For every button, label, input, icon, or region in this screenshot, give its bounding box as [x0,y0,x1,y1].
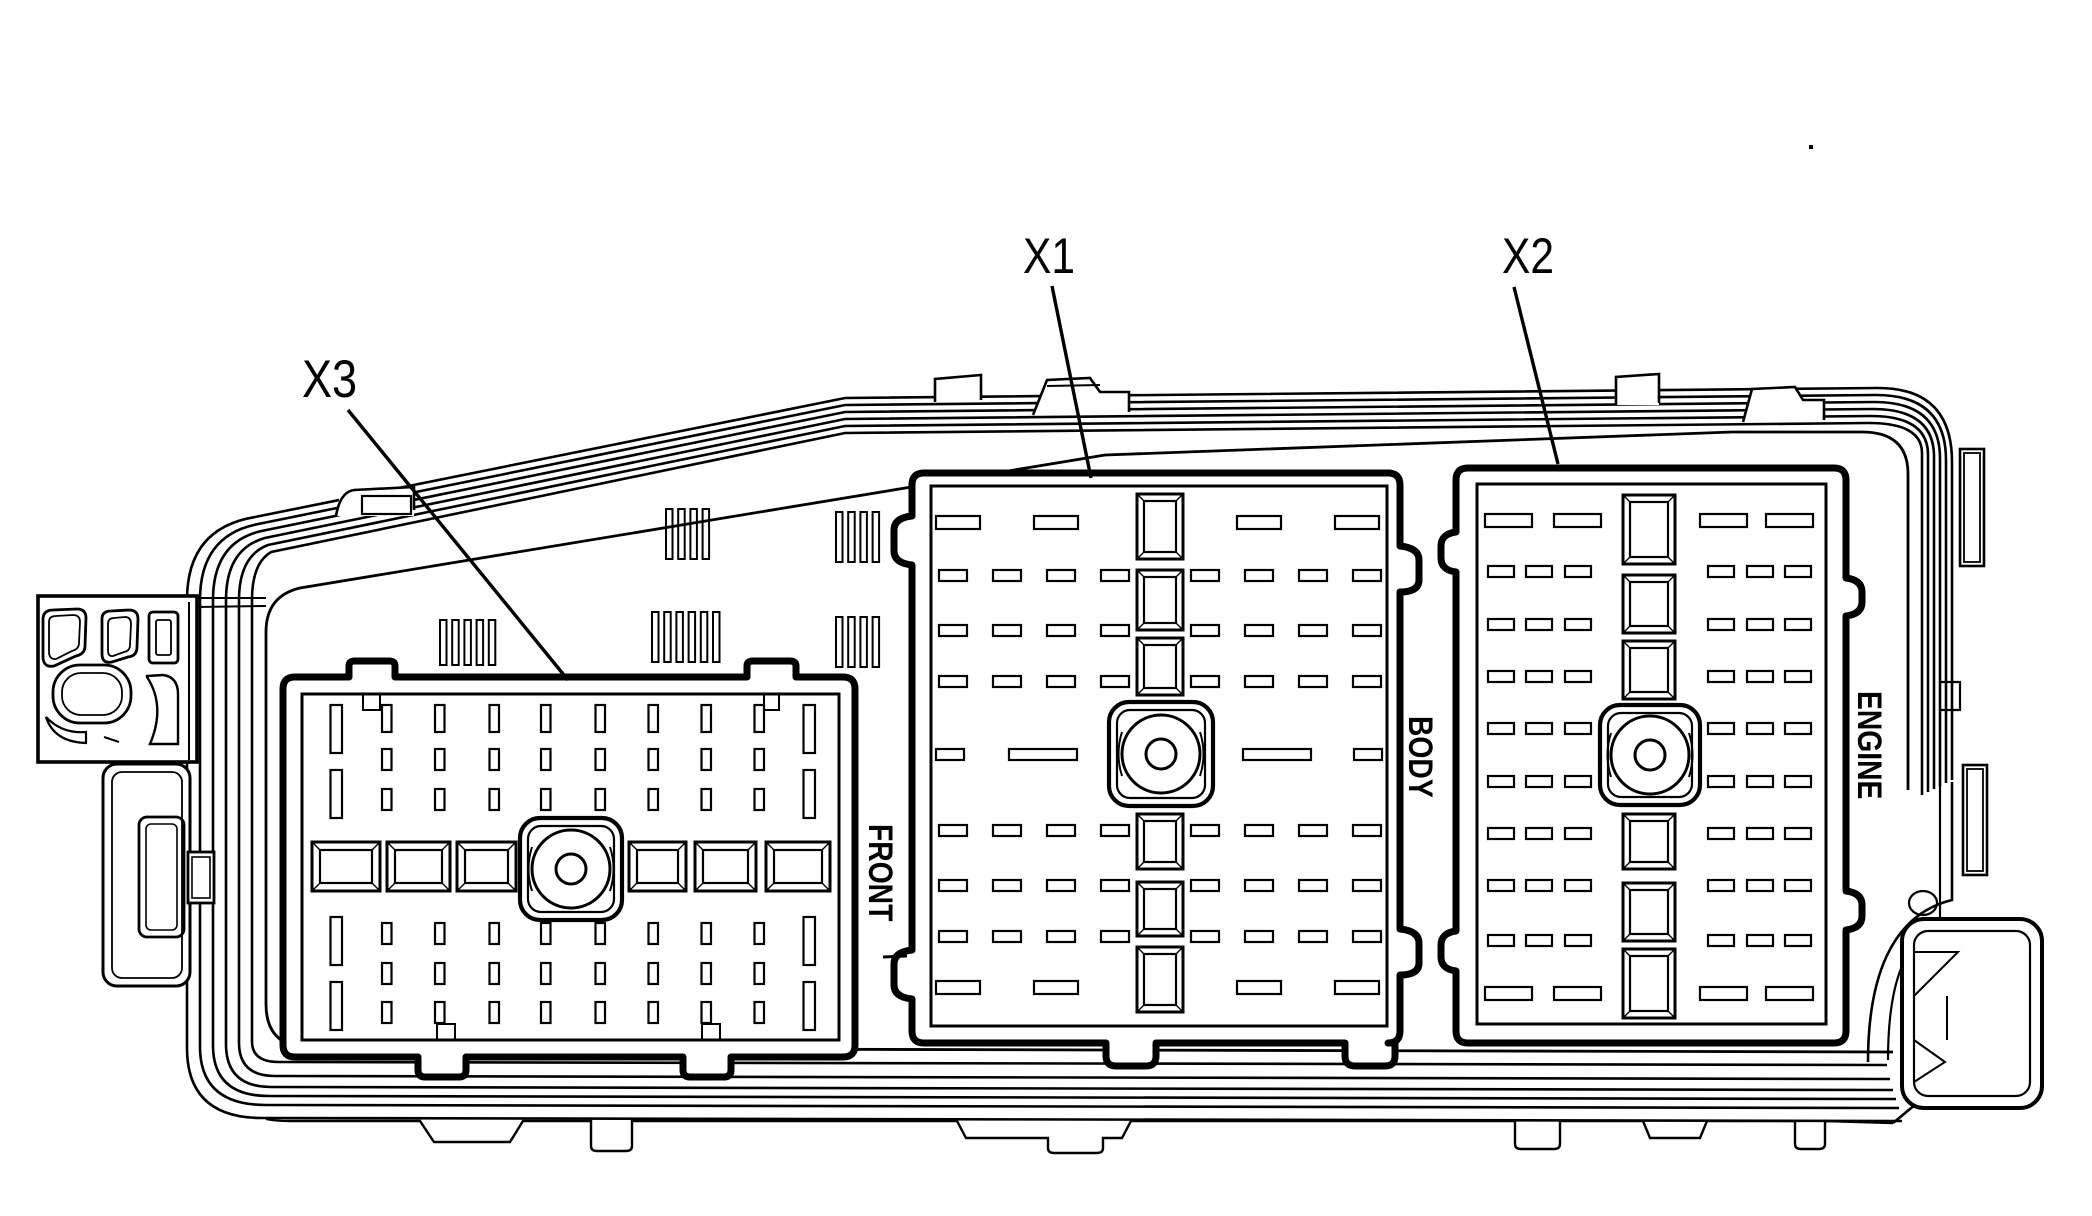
svg-text:ENGINE: ENGINE [1850,691,1889,799]
svg-text:BODY: BODY [1401,716,1440,798]
svg-text:X3: X3 [302,350,357,409]
svg-text:X1: X1 [1023,228,1075,284]
svg-text:FRONT: FRONT [861,824,900,921]
svg-text:X2: X2 [1502,228,1554,284]
